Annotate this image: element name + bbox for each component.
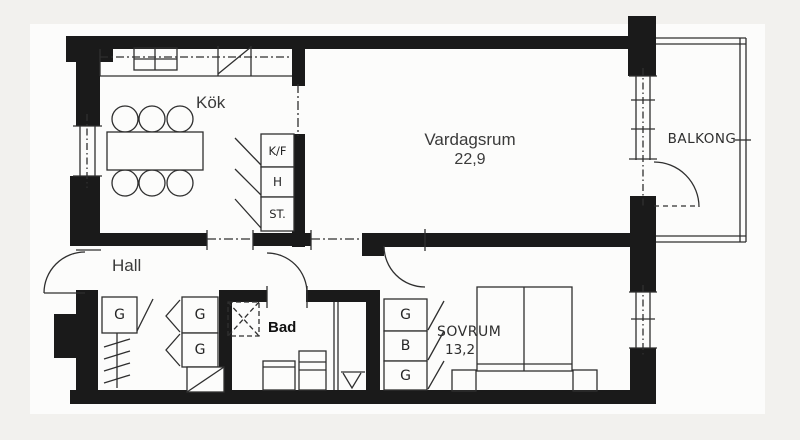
wall-under-closets [253,233,311,246]
dishwasher-diagonal [218,47,251,74]
bathroom-door-arc [267,253,307,293]
balcony-door [654,162,699,207]
room-area-bedroom: 13,2 [445,342,475,358]
kitchen-table [107,132,203,170]
label-hall-wardrobe-mid-1: G [182,297,218,333]
label-fridge-freezer: K/F [261,134,294,167]
label-hall-wardrobe-left: G [102,297,137,333]
room-label-hall: Hall [112,256,141,276]
wall-bottom [70,390,656,404]
coat-rack [104,333,130,388]
wall-kitchen-living-upper [292,36,305,86]
wardrobe-mid-swings [166,300,180,366]
bedroom-window [629,285,657,355]
wall-living-bottom [362,233,656,247]
kitchen-counter [100,46,292,76]
label-shelf: H [261,167,294,197]
label-cleaning-closet: ST. [261,197,294,231]
toilet [341,372,365,388]
shaft [228,302,259,336]
wall-hall-left-bump [54,314,78,358]
wall-top [75,36,640,49]
bath-sink [299,351,326,390]
wall-hall-left [76,290,98,392]
pillar-balcony-bottom [630,196,656,292]
washing-machine [263,361,295,390]
wall-left-lower [70,176,100,246]
wall-bath-top-a [219,290,267,302]
entry-door [44,252,85,293]
bedroom-wardrobe-swings [428,301,444,389]
wall-bath-right [366,290,380,390]
floor-plan-screenshot: Kök Vardagsrum 22,9 BALKONG Hall Bad SOV… [0,0,800,440]
label-bedroom-wardrobe-1: G [384,299,427,331]
balcony-window [629,68,657,206]
room-label-balcony: BALKONG [656,131,748,147]
room-label-living: Vardagsrum [395,130,545,150]
label-bedroom-wardrobe-2: G [384,361,427,390]
room-area-living: 22,9 [395,151,545,169]
pillar-balcony-top [628,16,656,76]
cabinet-swing-marks [235,138,261,228]
room-label-kitchen: Kök [196,93,225,113]
wardrobe-left-swing [137,299,153,331]
room-label-bathroom: Bad [268,319,296,336]
bath-partition [334,302,338,390]
wall-bath-top-b [306,290,376,302]
nightstand-left [452,370,476,391]
room-label-bedroom: SOVRUM [437,324,501,340]
wall-kitchen-hall [98,233,207,246]
bedroom-door-arc [384,246,425,287]
pillar-corridor [362,233,384,256]
label-bedroom-linen: B [384,331,427,361]
nightstand-right [573,370,597,391]
wall-left-upper [76,36,100,126]
label-hall-wardrobe-mid-2: G [182,333,218,367]
